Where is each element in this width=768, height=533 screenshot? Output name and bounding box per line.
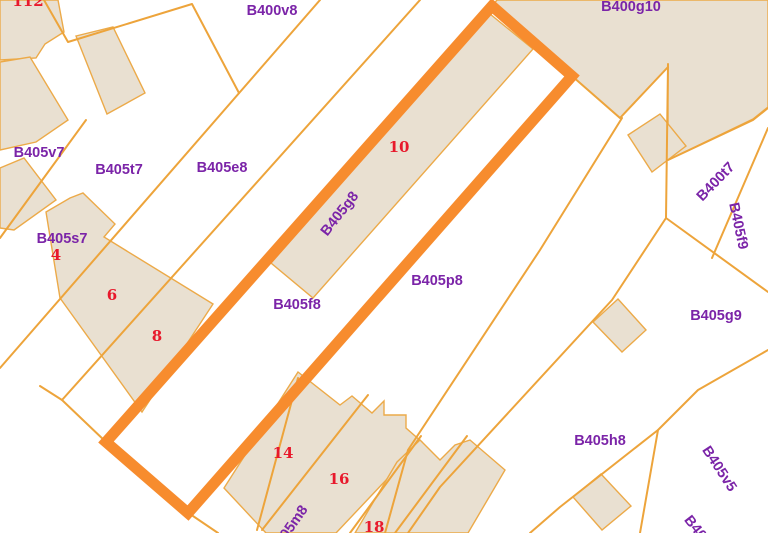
map-canvas[interactable]: B400v8B400g10B405v7B405t7B405e8B405s7B40… bbox=[0, 0, 768, 533]
parcel-label-B405g9: B405g9 bbox=[690, 308, 742, 324]
house-number-8: 8 bbox=[152, 327, 162, 345]
house-number-14: 14 bbox=[273, 444, 294, 462]
parcel-label-B400v8: B400v8 bbox=[247, 3, 298, 19]
house-number-112: 112 bbox=[12, 0, 43, 10]
parcel-label-B405s7: B405s7 bbox=[37, 231, 88, 247]
house-number-18: 18 bbox=[364, 518, 385, 533]
parcel-label-B405f8: B405f8 bbox=[273, 297, 321, 313]
parcel-label-B405v7: B405v7 bbox=[14, 145, 65, 161]
parcel-label-B405h8: B405h8 bbox=[574, 433, 626, 449]
house-number-4: 4 bbox=[51, 246, 61, 264]
house-number-10: 10 bbox=[389, 138, 410, 156]
house-number-16: 16 bbox=[329, 470, 350, 488]
parcel-label-B405p8: B405p8 bbox=[411, 273, 463, 289]
parcel-label-B400g10: B400g10 bbox=[601, 0, 661, 15]
parcel-label-B405t7: B405t7 bbox=[95, 162, 143, 178]
parcel-label-B405e8: B405e8 bbox=[197, 160, 248, 176]
house-number-6: 6 bbox=[107, 286, 117, 304]
parcel-map-svg: B400v8B400g10B405v7B405t7B405e8B405s7B40… bbox=[0, 0, 768, 533]
